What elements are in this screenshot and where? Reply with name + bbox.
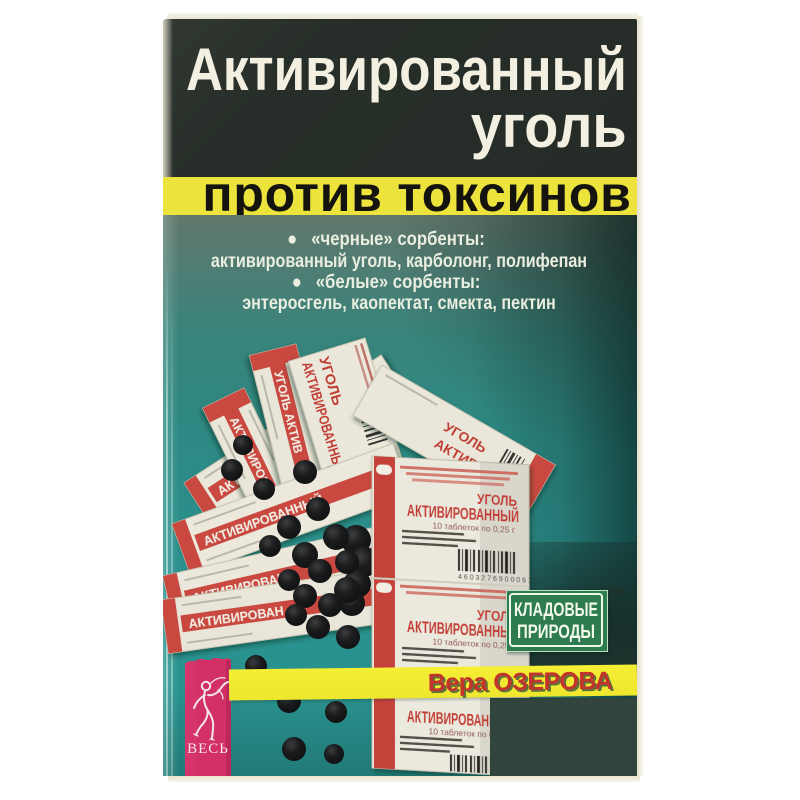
svg-text:ПРИРОДЫ: ПРИРОДЫ [517,622,595,643]
svg-text:КЛАДОВЫЕ: КЛАДОВЫЕ [514,600,598,621]
svg-text:ВЕСЬ: ВЕСЬ [187,741,229,757]
